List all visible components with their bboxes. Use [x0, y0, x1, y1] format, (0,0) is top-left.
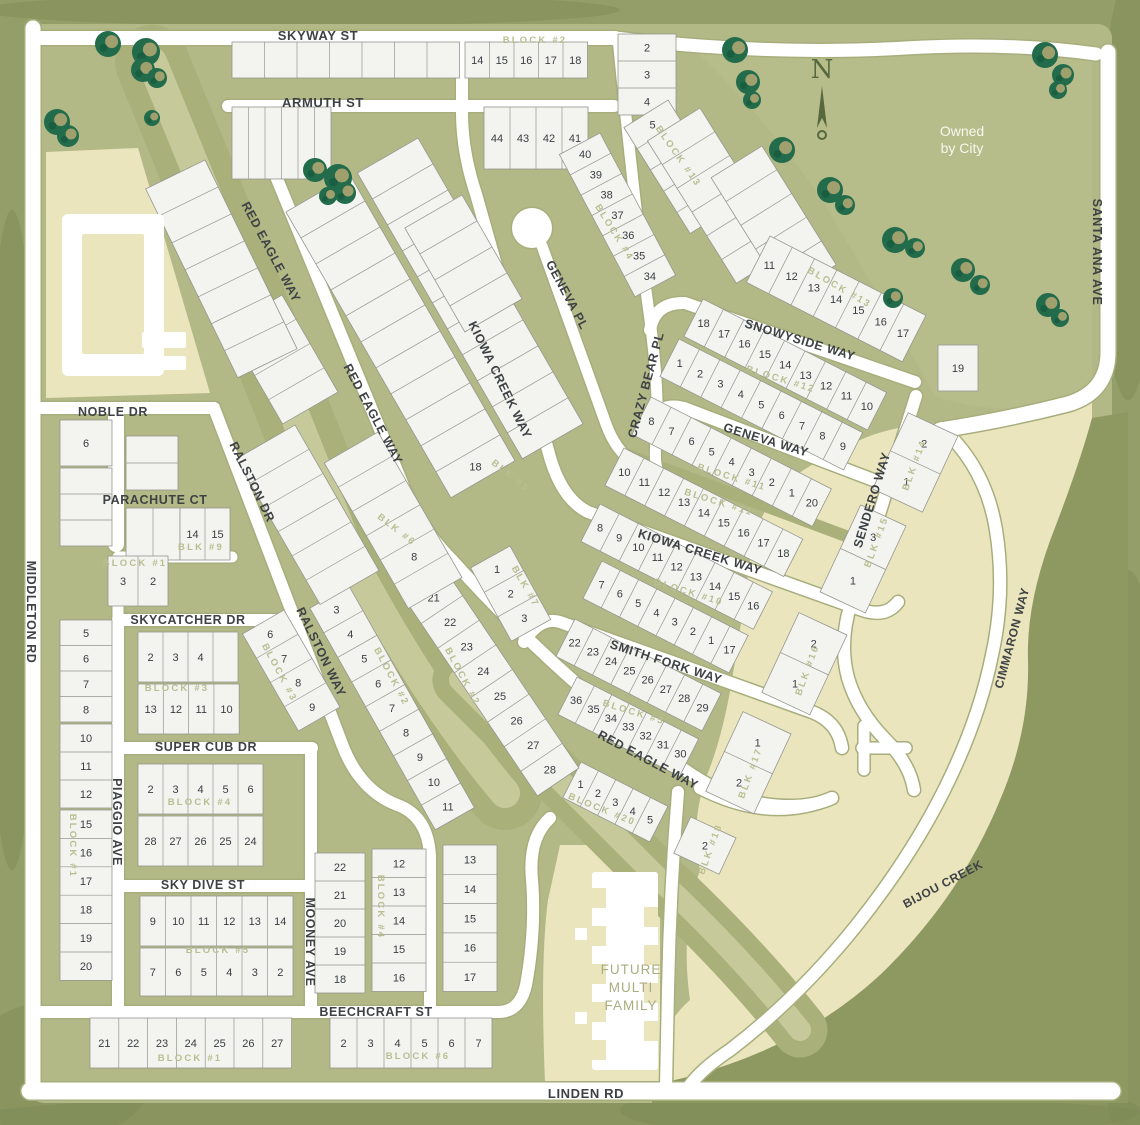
lot-number: 15 [718, 517, 730, 529]
lot-number: 15 [464, 913, 476, 925]
tree-icon [951, 258, 975, 282]
lot-number: 2 [147, 652, 153, 664]
lot-block: 1314151617 [443, 845, 497, 992]
lot-number: 43 [517, 133, 529, 145]
tree-shadow [61, 136, 68, 143]
lot-number: 18 [469, 461, 481, 473]
lot-number: 4 [226, 967, 232, 979]
lot-number: 29 [696, 703, 708, 715]
lot-number: 10 [618, 467, 630, 479]
lot-number: 26 [242, 1038, 254, 1050]
lot-number: 4 [197, 784, 203, 796]
tree-icon [769, 137, 795, 163]
lot-number: 2 [277, 967, 283, 979]
building-footprint [592, 888, 606, 908]
lot-number: 16 [875, 317, 887, 329]
lot-number: 4 [738, 389, 744, 401]
lot-number: 11 [196, 704, 207, 716]
tree-shadow [955, 270, 962, 277]
tree-icon [722, 37, 748, 63]
lot-number: 19 [334, 946, 346, 958]
lot-number: 15 [759, 349, 771, 361]
lot-number: 10 [632, 542, 644, 554]
block-label-blk-9: BLK #9 [178, 542, 224, 553]
block-label-block-4: BLOCK #4 [168, 797, 233, 808]
lot-number: 7 [281, 653, 287, 665]
tree-shadow [151, 78, 157, 84]
lot-number: 25 [219, 836, 231, 848]
lot-number: 8 [403, 728, 409, 740]
lot-block: 2827262524 [138, 816, 263, 866]
tree-shadow [909, 248, 915, 254]
lot-number: 18 [80, 904, 92, 916]
lot-number: 14 [830, 294, 842, 306]
block-label-block-1: BLOCK #1 [103, 558, 168, 569]
lot-number: 38 [601, 190, 613, 202]
lot-number: 30 [674, 748, 686, 760]
lot-number: 8 [648, 416, 654, 428]
lot-number: 11 [80, 761, 91, 773]
tree-shadow [727, 50, 735, 58]
lot-number: 26 [194, 836, 206, 848]
tree-icon [882, 227, 908, 253]
future-multi-family-label: FUTURE [601, 962, 662, 977]
lot-number: 4 [644, 97, 650, 109]
lot-number: 12 [223, 916, 235, 928]
building-footprint [150, 356, 186, 370]
lot-number: 20 [806, 498, 818, 510]
lot-number: 17 [464, 972, 476, 984]
block-label-block-3: BLOCK #3 [145, 683, 210, 694]
lot-number: 4 [653, 607, 659, 619]
street-label-middleton-rd: MIDDLETON RD [24, 561, 38, 664]
building-footprint [82, 234, 144, 354]
lot-number: 1 [578, 779, 584, 791]
lot-number: 11 [639, 477, 650, 489]
lot-block [60, 468, 112, 546]
building-footprint [592, 1040, 606, 1060]
tree-shadow [974, 285, 980, 291]
lot-number: 9 [150, 916, 156, 928]
lot-number: 3 [672, 617, 678, 629]
lot-block-outline [60, 468, 112, 546]
lot-number: 6 [83, 438, 89, 450]
lot-number: 10 [220, 704, 232, 716]
lot-number: 14 [779, 359, 791, 371]
lot-number: 18 [698, 318, 710, 330]
lot-number: 8 [597, 523, 603, 535]
lot-number: 11 [764, 260, 775, 272]
lot-number: 17 [80, 876, 92, 888]
lot-number: 5 [361, 654, 367, 666]
lot-number: 13 [690, 571, 702, 583]
street-label-linden-rd: LINDEN RD [548, 1086, 624, 1101]
lot-number: 6 [267, 629, 273, 641]
lot-number: 26 [510, 715, 522, 727]
lot-number: 14 [274, 916, 286, 928]
tree-icon [144, 110, 160, 126]
lot-number: 28 [678, 693, 690, 705]
lot-number: 27 [527, 740, 539, 752]
lot-number: 27 [271, 1038, 283, 1050]
tree-shadow [338, 193, 345, 200]
block-label-block-1: BLOCK #1 [158, 1053, 223, 1064]
lot-number: 25 [213, 1038, 225, 1050]
tree-icon [95, 31, 121, 57]
lot-number: 22 [444, 617, 456, 629]
lot-number: 13 [808, 283, 820, 295]
lot-number: 44 [491, 133, 503, 145]
tree-icon [57, 125, 79, 147]
lot-block-outline [232, 42, 460, 78]
tree-shadow [329, 178, 337, 186]
lot-number: 2 [147, 784, 153, 796]
lot-number: 5 [222, 784, 228, 796]
owned-by-city-label: by City [941, 140, 984, 156]
lot-number: 6 [779, 410, 785, 422]
lot-number: 13 [464, 855, 476, 867]
lot-number: 34 [644, 271, 656, 283]
lot-block: 6 [60, 420, 112, 466]
tree-icon [970, 275, 990, 295]
lot-number: 8 [83, 704, 89, 716]
street-label-armuth-st: ARMUTH ST [282, 95, 364, 110]
tree-shadow [49, 122, 57, 130]
lot-block: 1415161718 [465, 42, 588, 78]
lot-number: 21 [98, 1038, 110, 1050]
lot-block: 91011121314 [140, 896, 293, 946]
lot-number: 22 [568, 637, 580, 649]
lot-block: 5678 [60, 620, 112, 722]
lot-number: 17 [757, 538, 769, 550]
tree-icon [303, 158, 327, 182]
lot-number: 7 [389, 703, 395, 715]
lot-number: 8 [411, 552, 417, 564]
lot-number: 5 [635, 598, 641, 610]
lot-number: 3 [612, 797, 618, 809]
tree-icon [1049, 81, 1067, 99]
tree-shadow [839, 205, 845, 211]
lot-number: 2 [690, 626, 696, 638]
lot-number: 12 [393, 858, 405, 870]
lot-number: 24 [185, 1038, 197, 1050]
lot-number: 12 [820, 380, 832, 392]
lot-number: 1 [677, 358, 683, 370]
lot-number: 18 [334, 974, 346, 986]
lot-number: 2 [644, 43, 650, 55]
lot-number: 3 [717, 379, 723, 391]
lot-number: 22 [334, 862, 346, 874]
lot-number: 31 [657, 739, 669, 751]
tree-icon [835, 195, 855, 215]
lot-number: 25 [494, 691, 506, 703]
lot-number: 17 [897, 328, 909, 340]
tree-shadow [746, 100, 751, 105]
lot-number: 35 [587, 704, 599, 716]
lot-number: 36 [570, 695, 582, 707]
tree-shadow [307, 170, 314, 177]
lot-number: 13 [145, 704, 157, 716]
lot-number: 4 [347, 629, 353, 641]
building-footprint [644, 1021, 658, 1041]
lot-number: 4 [394, 1038, 400, 1050]
lot-number: 2 [340, 1038, 346, 1050]
plat-map-svg: 1415161718444342414039383736353423456789… [0, 0, 1140, 1125]
lot-number: 10 [861, 401, 873, 413]
lot-number: 25 [623, 665, 635, 677]
lot-number: 17 [723, 645, 735, 657]
lot-number: 16 [393, 972, 405, 984]
future-multi-family-label: MULTI [609, 980, 654, 995]
building-footprint [575, 928, 587, 940]
lot-number: 3 [333, 604, 339, 616]
lot-number: 19 [80, 933, 92, 945]
street-label-noble-dr: NOBLE DR [78, 405, 148, 419]
lot-number: 9 [840, 441, 846, 453]
lot-number: 24 [244, 836, 256, 848]
lot-number: 12 [170, 704, 182, 716]
street-label-skyway-st: SKYWAY ST [278, 28, 359, 43]
subdivision-plat-map: 1415161718444342414039383736353423456789… [0, 0, 1140, 1125]
lot-number: 14 [471, 55, 483, 67]
lot-number: 6 [175, 967, 181, 979]
lot-number: 14 [698, 507, 710, 519]
tree-icon [1051, 309, 1069, 327]
lot-number: 28 [144, 836, 156, 848]
block-label-block-6: BLOCK #6 [386, 1051, 451, 1062]
compass-n-letter: N [811, 55, 834, 85]
lot-block [126, 508, 180, 560]
tree-shadow [322, 196, 327, 201]
lot-number: 16 [464, 943, 476, 955]
lot-number: 11 [442, 801, 453, 813]
lot-number: 11 [198, 916, 209, 928]
lot-number: 11 [652, 552, 663, 564]
lot-number: 26 [642, 675, 654, 687]
tree-shadow [740, 82, 747, 89]
lot-number: 20 [334, 918, 346, 930]
lot-number: 12 [785, 271, 797, 283]
lot-number: 11 [841, 391, 852, 403]
lot-block: 2221201918 [315, 853, 365, 993]
block-label-block-2: BLOCK #2 [503, 35, 568, 46]
tree-shadow [822, 190, 830, 198]
lot-number: 41 [569, 133, 581, 145]
lot-number: 1 [789, 487, 795, 499]
tree-icon [736, 70, 760, 94]
lot-number: 3 [252, 967, 258, 979]
street-label-santa-ana-ave: SANTA ANA AVE [1090, 199, 1104, 306]
lot-number: 20 [80, 961, 92, 973]
lot-number: 3 [120, 576, 126, 588]
lot-number: 15 [393, 944, 405, 956]
street-label-mooney-ave: MOONEY AVE [303, 897, 317, 986]
future-multi-family-label: FAMILY [604, 998, 657, 1013]
block-label-block-4: BLOCK #4 [375, 875, 386, 940]
tree-shadow [774, 150, 782, 158]
lot-number: 9 [309, 702, 315, 714]
lot-number: 15 [211, 529, 223, 541]
building-footprint [575, 1012, 587, 1024]
lot-number: 5 [201, 967, 207, 979]
lot-number: 12 [658, 487, 670, 499]
tree-icon [147, 68, 167, 88]
lot-number: 4 [729, 457, 735, 469]
lot-number: 1 [494, 564, 500, 576]
lot-number: 14 [709, 581, 721, 593]
lot-number: 5 [758, 399, 764, 411]
lot-number: 9 [616, 532, 622, 544]
lot-number: 24 [477, 666, 489, 678]
lot-number: 7 [83, 679, 89, 691]
tree-shadow [1054, 318, 1059, 323]
lot-number: 1 [850, 576, 856, 588]
lot-number: 3 [172, 784, 178, 796]
lot-number: 5 [83, 628, 89, 640]
lot-number: 6 [617, 589, 623, 601]
tree-shadow [1037, 55, 1045, 63]
tree-icon [743, 91, 761, 109]
lot-number: 4 [197, 652, 203, 664]
tree-shadow [147, 118, 152, 123]
lot-number: 10 [428, 777, 440, 789]
lot-number: 2 [150, 576, 156, 588]
geneva-pl-bulb [512, 208, 552, 248]
lot-number: 16 [520, 55, 532, 67]
lot-block [126, 436, 178, 490]
lot-number: 15 [728, 591, 740, 603]
lot-number: 6 [375, 678, 381, 690]
lot-number: 15 [496, 55, 508, 67]
lot-number: 16 [737, 528, 749, 540]
lot-number: 18 [777, 548, 789, 560]
lot-number: 23 [587, 647, 599, 659]
tree-shadow [887, 240, 895, 248]
lot-number: 8 [819, 431, 825, 443]
lot-number: 1 [708, 635, 714, 647]
tree-icon [334, 182, 356, 204]
tree-shadow [887, 298, 893, 304]
lot-number: 28 [544, 765, 556, 777]
lot-number: 7 [668, 426, 674, 438]
lot-number: 3 [521, 613, 527, 625]
lot-number: 5 [709, 446, 715, 458]
lot-number: 13 [393, 887, 405, 899]
lot-block: 234 [138, 632, 238, 682]
lot-block [232, 42, 460, 78]
lot-number: 2 [595, 788, 601, 800]
lot-number: 10 [80, 733, 92, 745]
lot-number: 23 [156, 1038, 168, 1050]
lot-number: 6 [247, 784, 253, 796]
lot-number: 9 [417, 752, 423, 764]
lot-number: 8 [295, 678, 301, 690]
lot-block: 19 [938, 345, 978, 391]
lot-number: 27 [660, 684, 672, 696]
lot-number: 7 [475, 1038, 481, 1050]
building-footprint [592, 926, 606, 946]
lot-number: 40 [579, 149, 591, 161]
lot-number: 19 [952, 363, 964, 375]
owned-by-city-label: Owned [940, 123, 984, 139]
lot-number: 27 [169, 836, 181, 848]
block-label-block-1: BLOCK #1 [67, 814, 78, 879]
street-label-skycatcher-dr: SKYCATCHER DR [130, 613, 245, 627]
street-label-sky-dive-st: SKY DIVE ST [161, 878, 245, 892]
tree-shadow [135, 70, 142, 77]
lot-number: 10 [172, 916, 184, 928]
lot-number: 6 [448, 1038, 454, 1050]
lot-number: 16 [747, 601, 759, 613]
lot-number: 12 [80, 789, 92, 801]
tree-shadow [100, 44, 108, 52]
lot-number: 33 [622, 722, 634, 734]
lot-block: 101112 [60, 724, 112, 808]
tree-icon [319, 187, 337, 205]
lot-number: 15 [80, 819, 92, 831]
street-label-super-cub-dr: SUPER CUB DR [155, 740, 257, 754]
lot-number: 3 [367, 1038, 373, 1050]
street-label-parachute-ct: PARACHUTE CT [103, 493, 208, 507]
lot-number: 32 [640, 731, 652, 743]
lot-number: 12 [671, 562, 683, 574]
lot-number: 7 [599, 579, 605, 591]
lot-number: 5 [421, 1038, 427, 1050]
lot-number: 13 [249, 916, 261, 928]
lot-number: 21 [334, 890, 346, 902]
lot-number: 6 [83, 653, 89, 665]
lot-number: 7 [150, 967, 156, 979]
lot-number: 17 [545, 55, 557, 67]
tree-shadow [1056, 75, 1063, 82]
lot-number: 16 [738, 339, 750, 351]
tree-icon [883, 288, 903, 308]
building-footprint [142, 332, 186, 348]
lot-number: 17 [718, 328, 730, 340]
lot-number: 14 [393, 915, 405, 927]
lot-number: 2 [769, 477, 775, 489]
street-label-beechcraft-st: BEECHCRAFT ST [319, 1005, 432, 1019]
building-footprint [644, 907, 658, 927]
lot-number: 34 [605, 713, 617, 725]
lot-number: 39 [590, 169, 602, 181]
lot-number: 16 [80, 848, 92, 860]
tree-shadow [1052, 90, 1057, 95]
lot-number: 7 [799, 420, 805, 432]
lot-number: 14 [464, 884, 476, 896]
lot-number: 5 [647, 815, 653, 827]
lot-number: 23 [461, 642, 473, 654]
tree-icon [1032, 42, 1058, 68]
street-label-piaggio-ave: PIAGGIO AVE [110, 778, 124, 866]
tree-icon [905, 238, 925, 258]
lot-number: 2 [508, 589, 514, 601]
lot-number: 24 [605, 656, 617, 668]
block-label-block-5: BLOCK #5 [186, 945, 251, 956]
lot-number: 42 [543, 133, 555, 145]
lot-number: 3 [644, 70, 650, 82]
lot-number: 18 [569, 55, 581, 67]
lot-number: 3 [172, 652, 178, 664]
lot-number: 14 [186, 529, 198, 541]
lot-number: 22 [127, 1038, 139, 1050]
lot-number: 2 [697, 368, 703, 380]
tree-shadow [1040, 305, 1047, 312]
lot-number: 6 [689, 436, 695, 448]
